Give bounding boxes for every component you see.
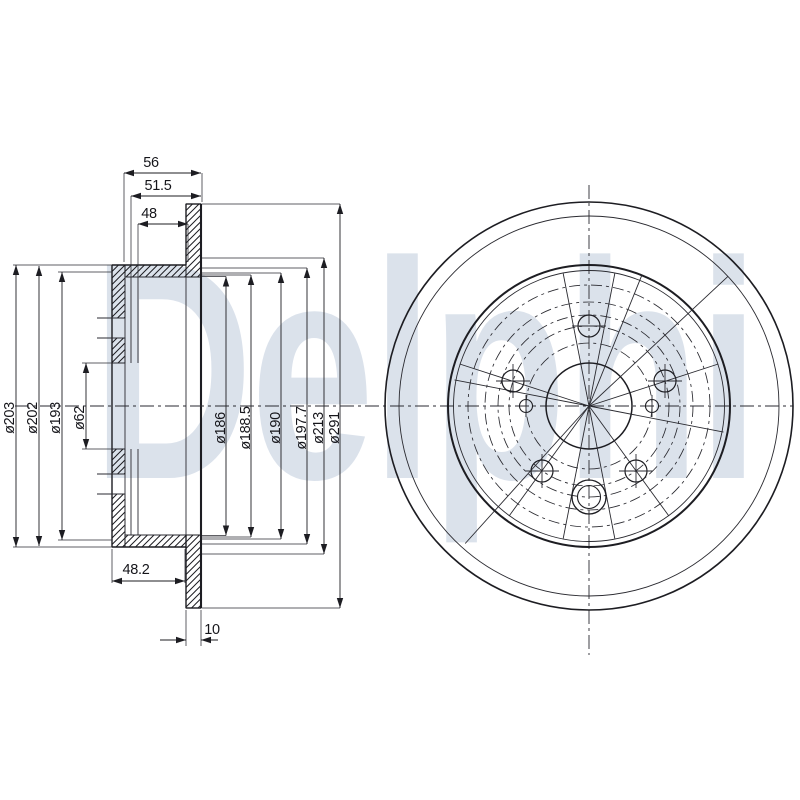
dim-thickness-10: 10 bbox=[204, 622, 220, 638]
dim-dia-213: ø213 bbox=[311, 412, 327, 444]
dim-dia-186: ø186 bbox=[213, 412, 229, 444]
brake-disc-drawing: Delphi bbox=[0, 0, 800, 800]
dim-dia-202: ø202 bbox=[25, 402, 41, 434]
dim-width-48: 48 bbox=[141, 206, 157, 222]
dim-dia-291: ø291 bbox=[327, 412, 343, 444]
technical-drawing-page: Delphi bbox=[0, 0, 800, 800]
dim-width-56: 56 bbox=[143, 155, 159, 171]
section-dims-bottom: 48.2 10 bbox=[112, 549, 220, 646]
dim-width-51-5: 51.5 bbox=[144, 178, 171, 194]
dim-dia-188-5: ø188.5 bbox=[238, 406, 254, 450]
dim-dia-203: ø203 bbox=[2, 402, 18, 434]
dim-hat-depth-48-2: 48.2 bbox=[122, 562, 149, 578]
dim-dia-190: ø190 bbox=[268, 412, 284, 444]
dim-dia-197-7: ø197.7 bbox=[294, 406, 310, 450]
dim-dia-62: ø62 bbox=[72, 406, 88, 430]
dim-dia-193: ø193 bbox=[48, 402, 64, 434]
